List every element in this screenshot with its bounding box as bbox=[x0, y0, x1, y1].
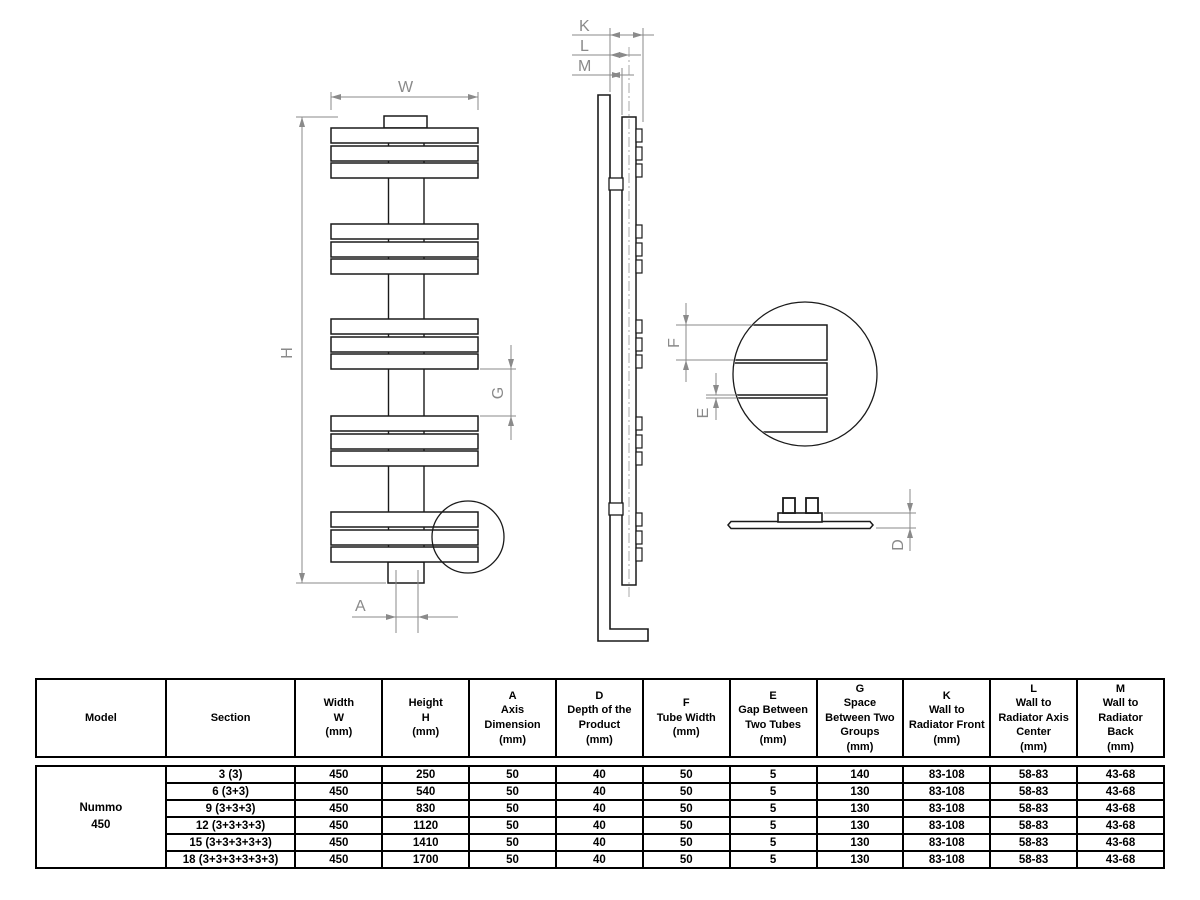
tube-tab bbox=[636, 129, 642, 142]
spec-table-body-table: Nummo 4503 (3)450250504050514083-10858-8… bbox=[35, 765, 1165, 869]
spec-cell: 1410 bbox=[382, 834, 469, 851]
tube-tab bbox=[636, 531, 642, 544]
spec-cell: 50 bbox=[643, 766, 730, 783]
spec-table-body: Nummo 4503 (3)450250504050514083-10858-8… bbox=[35, 765, 1165, 869]
spec-cell: 40 bbox=[556, 766, 643, 783]
tube-tab bbox=[636, 338, 642, 351]
spec-table-header-table: ModelSectionWidth W (mm)Height H (mm)A A… bbox=[35, 678, 1165, 758]
spec-cell: 83-108 bbox=[903, 800, 990, 817]
dim-label-k: K bbox=[579, 18, 590, 35]
radiator-tube bbox=[331, 512, 478, 527]
radiator-tube bbox=[331, 128, 478, 143]
spec-cell: 40 bbox=[556, 834, 643, 851]
radiator-tube bbox=[331, 530, 478, 545]
spec-cell: 40 bbox=[556, 800, 643, 817]
radiator-tube bbox=[331, 242, 478, 257]
radiator-spec-sheet: W H G bbox=[0, 0, 1200, 900]
spec-cell: 450 bbox=[295, 783, 382, 800]
dim-label-d: D bbox=[890, 539, 907, 551]
spec-cell: 5 bbox=[730, 800, 817, 817]
dim-depth: D bbox=[824, 489, 916, 551]
spec-cell: 130 bbox=[817, 800, 904, 817]
header-cell: Section bbox=[166, 679, 296, 757]
spec-cell: 50 bbox=[469, 834, 556, 851]
spec-cell: 83-108 bbox=[903, 817, 990, 834]
radiator-tube bbox=[331, 259, 478, 274]
tube-tab bbox=[636, 225, 642, 238]
header-cell: G Space Between Two Groups (mm) bbox=[817, 679, 904, 757]
spec-cell: 50 bbox=[643, 800, 730, 817]
radiator-tube bbox=[331, 146, 478, 161]
dim-label-h: H bbox=[279, 347, 296, 359]
dim-wall-front: K bbox=[572, 18, 654, 35]
radiator-tube bbox=[331, 224, 478, 239]
spec-cell: 83-108 bbox=[903, 766, 990, 783]
spec-cell: 43-68 bbox=[1077, 766, 1164, 783]
spec-cell: 50 bbox=[469, 766, 556, 783]
spec-cell: 3 (3) bbox=[166, 766, 296, 783]
radiator-tube bbox=[331, 337, 478, 352]
top-view-connection-pipe bbox=[783, 498, 795, 513]
spec-cell: 1120 bbox=[382, 817, 469, 834]
dim-group-space: G bbox=[480, 345, 516, 440]
header-cell: D Depth of the Product (mm) bbox=[556, 679, 643, 757]
radiator-tube bbox=[331, 416, 478, 431]
dim-label-a: A bbox=[355, 598, 366, 615]
spec-cell: 5 bbox=[730, 817, 817, 834]
dim-label-l: L bbox=[580, 38, 589, 55]
spec-cell: 43-68 bbox=[1077, 834, 1164, 851]
spec-row: 6 (3+3)450540504050513083-10858-8343-68 bbox=[36, 783, 1164, 800]
spec-cell: 5 bbox=[730, 851, 817, 868]
top-view: D bbox=[728, 489, 916, 551]
radiator-tube bbox=[331, 434, 478, 449]
header-cell: E Gap Between Two Tubes (mm) bbox=[730, 679, 817, 757]
spec-cell: 450 bbox=[295, 851, 382, 868]
dim-label-w: W bbox=[398, 79, 414, 96]
radiator-tube bbox=[331, 451, 478, 466]
front-view: W H G bbox=[279, 79, 516, 633]
detail-tube bbox=[700, 398, 827, 432]
header-cell: K Wall to Radiator Front (mm) bbox=[903, 679, 990, 757]
tube-groups bbox=[331, 128, 478, 562]
top-view-connection-pipe bbox=[806, 498, 818, 513]
spec-cell: 50 bbox=[469, 851, 556, 868]
spec-cell: 9 (3+3+3) bbox=[166, 800, 296, 817]
spec-cell: 50 bbox=[643, 851, 730, 868]
spec-cell: 50 bbox=[469, 783, 556, 800]
tube-tab bbox=[636, 147, 642, 160]
dim-label-g: G bbox=[490, 387, 507, 399]
spec-cell: 83-108 bbox=[903, 851, 990, 868]
tube-tab bbox=[636, 243, 642, 256]
tube-tab bbox=[636, 548, 642, 561]
spec-cell: 43-68 bbox=[1077, 817, 1164, 834]
tube-tab bbox=[636, 320, 642, 333]
spec-row: 15 (3+3+3+3+3)4501410504050513083-10858-… bbox=[36, 834, 1164, 851]
detail-circle-view: F E bbox=[666, 302, 877, 446]
tube-tab bbox=[636, 452, 642, 465]
bottom-connection-stub bbox=[388, 562, 424, 583]
spec-cell: 58-83 bbox=[990, 783, 1077, 800]
bracket-arm-bottom bbox=[609, 503, 623, 515]
spec-cell: 43-68 bbox=[1077, 851, 1164, 868]
spec-cell: 18 (3+3+3+3+3+3) bbox=[166, 851, 296, 868]
spec-cell: 50 bbox=[469, 800, 556, 817]
spec-cell: 1700 bbox=[382, 851, 469, 868]
side-view: K L M bbox=[572, 18, 654, 641]
header-row: ModelSectionWidth W (mm)Height H (mm)A A… bbox=[36, 679, 1164, 757]
spec-cell: 43-68 bbox=[1077, 800, 1164, 817]
dim-label-f: F bbox=[666, 338, 683, 348]
tube-tab bbox=[636, 164, 642, 177]
dim-label-m: M bbox=[578, 58, 591, 75]
spec-cell: 130 bbox=[817, 834, 904, 851]
radiator-tube bbox=[331, 354, 478, 369]
dim-wall-axis: L bbox=[572, 38, 641, 55]
spec-cell: 5 bbox=[730, 783, 817, 800]
spec-cell: 450 bbox=[295, 800, 382, 817]
spec-cell: 58-83 bbox=[990, 834, 1077, 851]
radiator-tube bbox=[331, 163, 478, 178]
spec-cell: 43-68 bbox=[1077, 783, 1164, 800]
spec-cell: 6 (3+3) bbox=[166, 783, 296, 800]
top-cap bbox=[384, 116, 427, 128]
spec-cell: 450 bbox=[295, 834, 382, 851]
spec-cell: 5 bbox=[730, 766, 817, 783]
spec-cell: 450 bbox=[295, 817, 382, 834]
radiator-tube bbox=[331, 547, 478, 562]
spec-cell: 450 bbox=[295, 766, 382, 783]
spec-row: Nummo 4503 (3)450250504050514083-10858-8… bbox=[36, 766, 1164, 783]
tube-tab bbox=[636, 435, 642, 448]
spec-cell: 40 bbox=[556, 783, 643, 800]
tube-tab bbox=[636, 355, 642, 368]
header-cell: Width W (mm) bbox=[295, 679, 382, 757]
tube-tab bbox=[636, 513, 642, 526]
spec-cell: 50 bbox=[643, 783, 730, 800]
spec-row: 9 (3+3+3)450830504050513083-10858-8343-6… bbox=[36, 800, 1164, 817]
spec-cell: 12 (3+3+3+3) bbox=[166, 817, 296, 834]
spec-cell: 50 bbox=[469, 817, 556, 834]
dim-tube-gap: E bbox=[695, 373, 736, 420]
header-cell: Height H (mm) bbox=[382, 679, 469, 757]
top-view-collector-block bbox=[778, 513, 822, 522]
spec-cell: 130 bbox=[817, 783, 904, 800]
spec-cell: 130 bbox=[817, 851, 904, 868]
tube-tab bbox=[636, 417, 642, 430]
spec-cell: 15 (3+3+3+3+3) bbox=[166, 834, 296, 851]
header-cell: M Wall to Radiator Back (mm) bbox=[1077, 679, 1164, 757]
spec-cell: 250 bbox=[382, 766, 469, 783]
bracket-arm-top bbox=[609, 178, 623, 190]
spec-cell: 830 bbox=[382, 800, 469, 817]
spec-cell: 58-83 bbox=[990, 800, 1077, 817]
spec-table-header: ModelSectionWidth W (mm)Height H (mm)A A… bbox=[35, 678, 1165, 758]
spec-cell: 130 bbox=[817, 817, 904, 834]
radiator-tube bbox=[331, 319, 478, 334]
detail-tube bbox=[700, 363, 827, 395]
dim-width: W bbox=[331, 79, 478, 110]
model-cell: Nummo 450 bbox=[36, 766, 166, 868]
spec-cell: 58-83 bbox=[990, 851, 1077, 868]
spec-cell: 40 bbox=[556, 851, 643, 868]
detail-tube bbox=[700, 325, 827, 360]
spec-cell: 58-83 bbox=[990, 766, 1077, 783]
header-cell: F Tube Width (mm) bbox=[643, 679, 730, 757]
side-tube-tabs bbox=[636, 129, 642, 561]
header-cell: L Wall to Radiator Axis Center (mm) bbox=[990, 679, 1077, 757]
spec-cell: 50 bbox=[643, 817, 730, 834]
spec-cell: 140 bbox=[817, 766, 904, 783]
spec-row: 12 (3+3+3+3)4501120504050513083-10858-83… bbox=[36, 817, 1164, 834]
tube-tab bbox=[636, 260, 642, 273]
header-cell: Model bbox=[36, 679, 166, 757]
technical-drawing: W H G bbox=[0, 0, 1200, 672]
spec-cell: 40 bbox=[556, 817, 643, 834]
spec-cell: 83-108 bbox=[903, 834, 990, 851]
spec-cell: 58-83 bbox=[990, 817, 1077, 834]
dim-wall-back: M bbox=[572, 58, 634, 75]
spec-cell: 83-108 bbox=[903, 783, 990, 800]
spec-row: 18 (3+3+3+3+3+3)4501700504050513083-1085… bbox=[36, 851, 1164, 868]
spec-cell: 540 bbox=[382, 783, 469, 800]
header-cell: A Axis Dimension (mm) bbox=[469, 679, 556, 757]
spec-cell: 5 bbox=[730, 834, 817, 851]
dim-label-e: E bbox=[695, 408, 712, 419]
spec-cell: 50 bbox=[643, 834, 730, 851]
